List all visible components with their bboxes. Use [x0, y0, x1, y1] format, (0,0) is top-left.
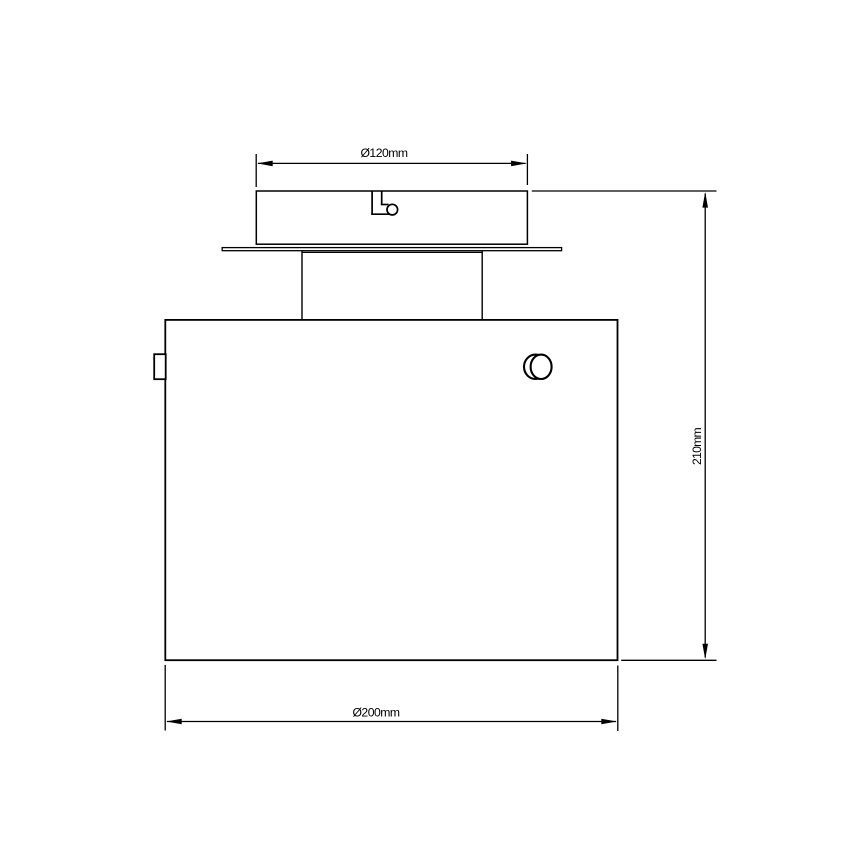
svg-text:Ø120mm: Ø120mm [360, 146, 407, 160]
svg-text:210mm: 210mm [690, 427, 704, 464]
svg-text:Ø200mm: Ø200mm [352, 705, 399, 719]
